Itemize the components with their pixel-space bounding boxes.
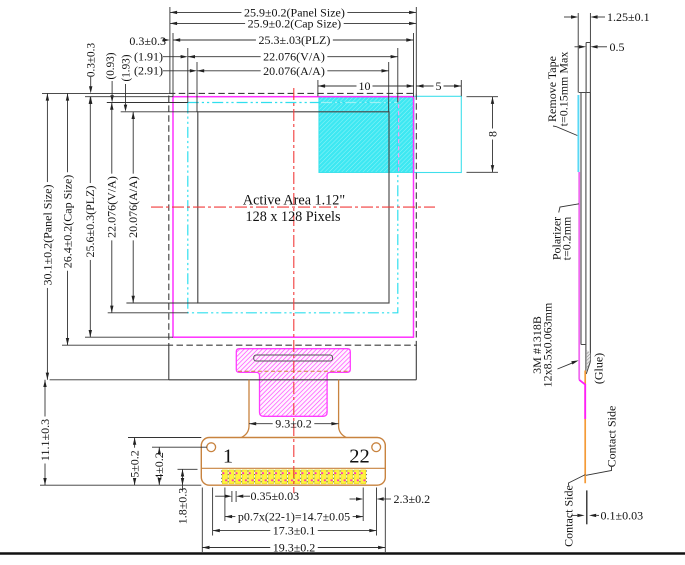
svg-text:20.076(A/A): 20.076(A/A)	[126, 176, 140, 238]
svg-text:0.3±0.3: 0.3±0.3	[129, 34, 166, 48]
svg-text:12x8.5x0.063mm: 12x8.5x0.063mm	[541, 302, 555, 387]
svg-text:2.3±0.2: 2.3±0.2	[394, 492, 431, 506]
svg-text:26.4±0.2(Cap Size): 26.4±0.2(Cap Size)	[60, 175, 74, 269]
svg-text:Contact Side: Contact Side	[605, 406, 619, 468]
svg-text:t=0.2mm: t=0.2mm	[560, 216, 574, 260]
svg-text:30.1±0.2(Panel Size): 30.1±0.2(Panel Size)	[40, 185, 54, 286]
svg-text:(Glue): (Glue)	[591, 353, 605, 384]
svg-text:t=0.15mm Max: t=0.15mm Max	[557, 52, 571, 127]
svg-text:0.5: 0.5	[610, 40, 625, 54]
svg-text:25.6±0.3(PLZ): 25.6±0.3(PLZ)	[83, 186, 97, 258]
svg-text:22.076(V/A): 22.076(V/A)	[263, 50, 325, 64]
svg-text:0.1±0.03: 0.1±0.03	[601, 508, 644, 522]
svg-text:(2.91): (2.91)	[134, 64, 163, 78]
svg-text:20.076(A/A): 20.076(A/A)	[263, 64, 325, 78]
svg-text:(1.91): (1.91)	[134, 50, 163, 64]
svg-text:9.3±0.2: 9.3±0.2	[275, 417, 312, 431]
svg-text:22.076(V/A): 22.076(V/A)	[105, 176, 119, 238]
svg-text:1.25±0.1: 1.25±0.1	[607, 10, 650, 24]
svg-text:Contact Side: Contact Side	[562, 485, 576, 547]
svg-text:p0.7x(22-1)=14.7±0.05: p0.7x(22-1)=14.7±0.05	[238, 510, 350, 524]
svg-text:0.3±0.3: 0.3±0.3	[85, 43, 97, 78]
svg-text:11.1±0.3: 11.1±0.3	[38, 419, 52, 461]
svg-text:Active Area 1.12": Active Area 1.12"	[243, 193, 345, 209]
svg-text:4±0.2: 4±0.2	[152, 452, 166, 480]
svg-text:128 x 128 Pixels: 128 x 128 Pixels	[246, 209, 341, 225]
svg-text:5: 5	[436, 79, 442, 93]
svg-text:25.3±.03(PLZ): 25.3±.03(PLZ)	[258, 33, 330, 47]
svg-text:(1.93): (1.93)	[120, 54, 132, 81]
svg-text:10: 10	[359, 79, 371, 93]
svg-text:1.8±0.3: 1.8±0.3	[175, 488, 189, 525]
svg-text:25.9±0.2(Cap Size): 25.9±0.2(Cap Size)	[248, 16, 342, 30]
svg-text:17.3±0.1: 17.3±0.1	[273, 524, 316, 538]
svg-text:5±0.2: 5±0.2	[128, 450, 142, 478]
svg-text:(0.93): (0.93)	[105, 52, 117, 79]
svg-text:1: 1	[223, 446, 233, 468]
svg-text:22: 22	[349, 446, 370, 468]
svg-text:8: 8	[485, 131, 499, 137]
svg-text:0.35±0.03: 0.35±0.03	[251, 489, 300, 503]
